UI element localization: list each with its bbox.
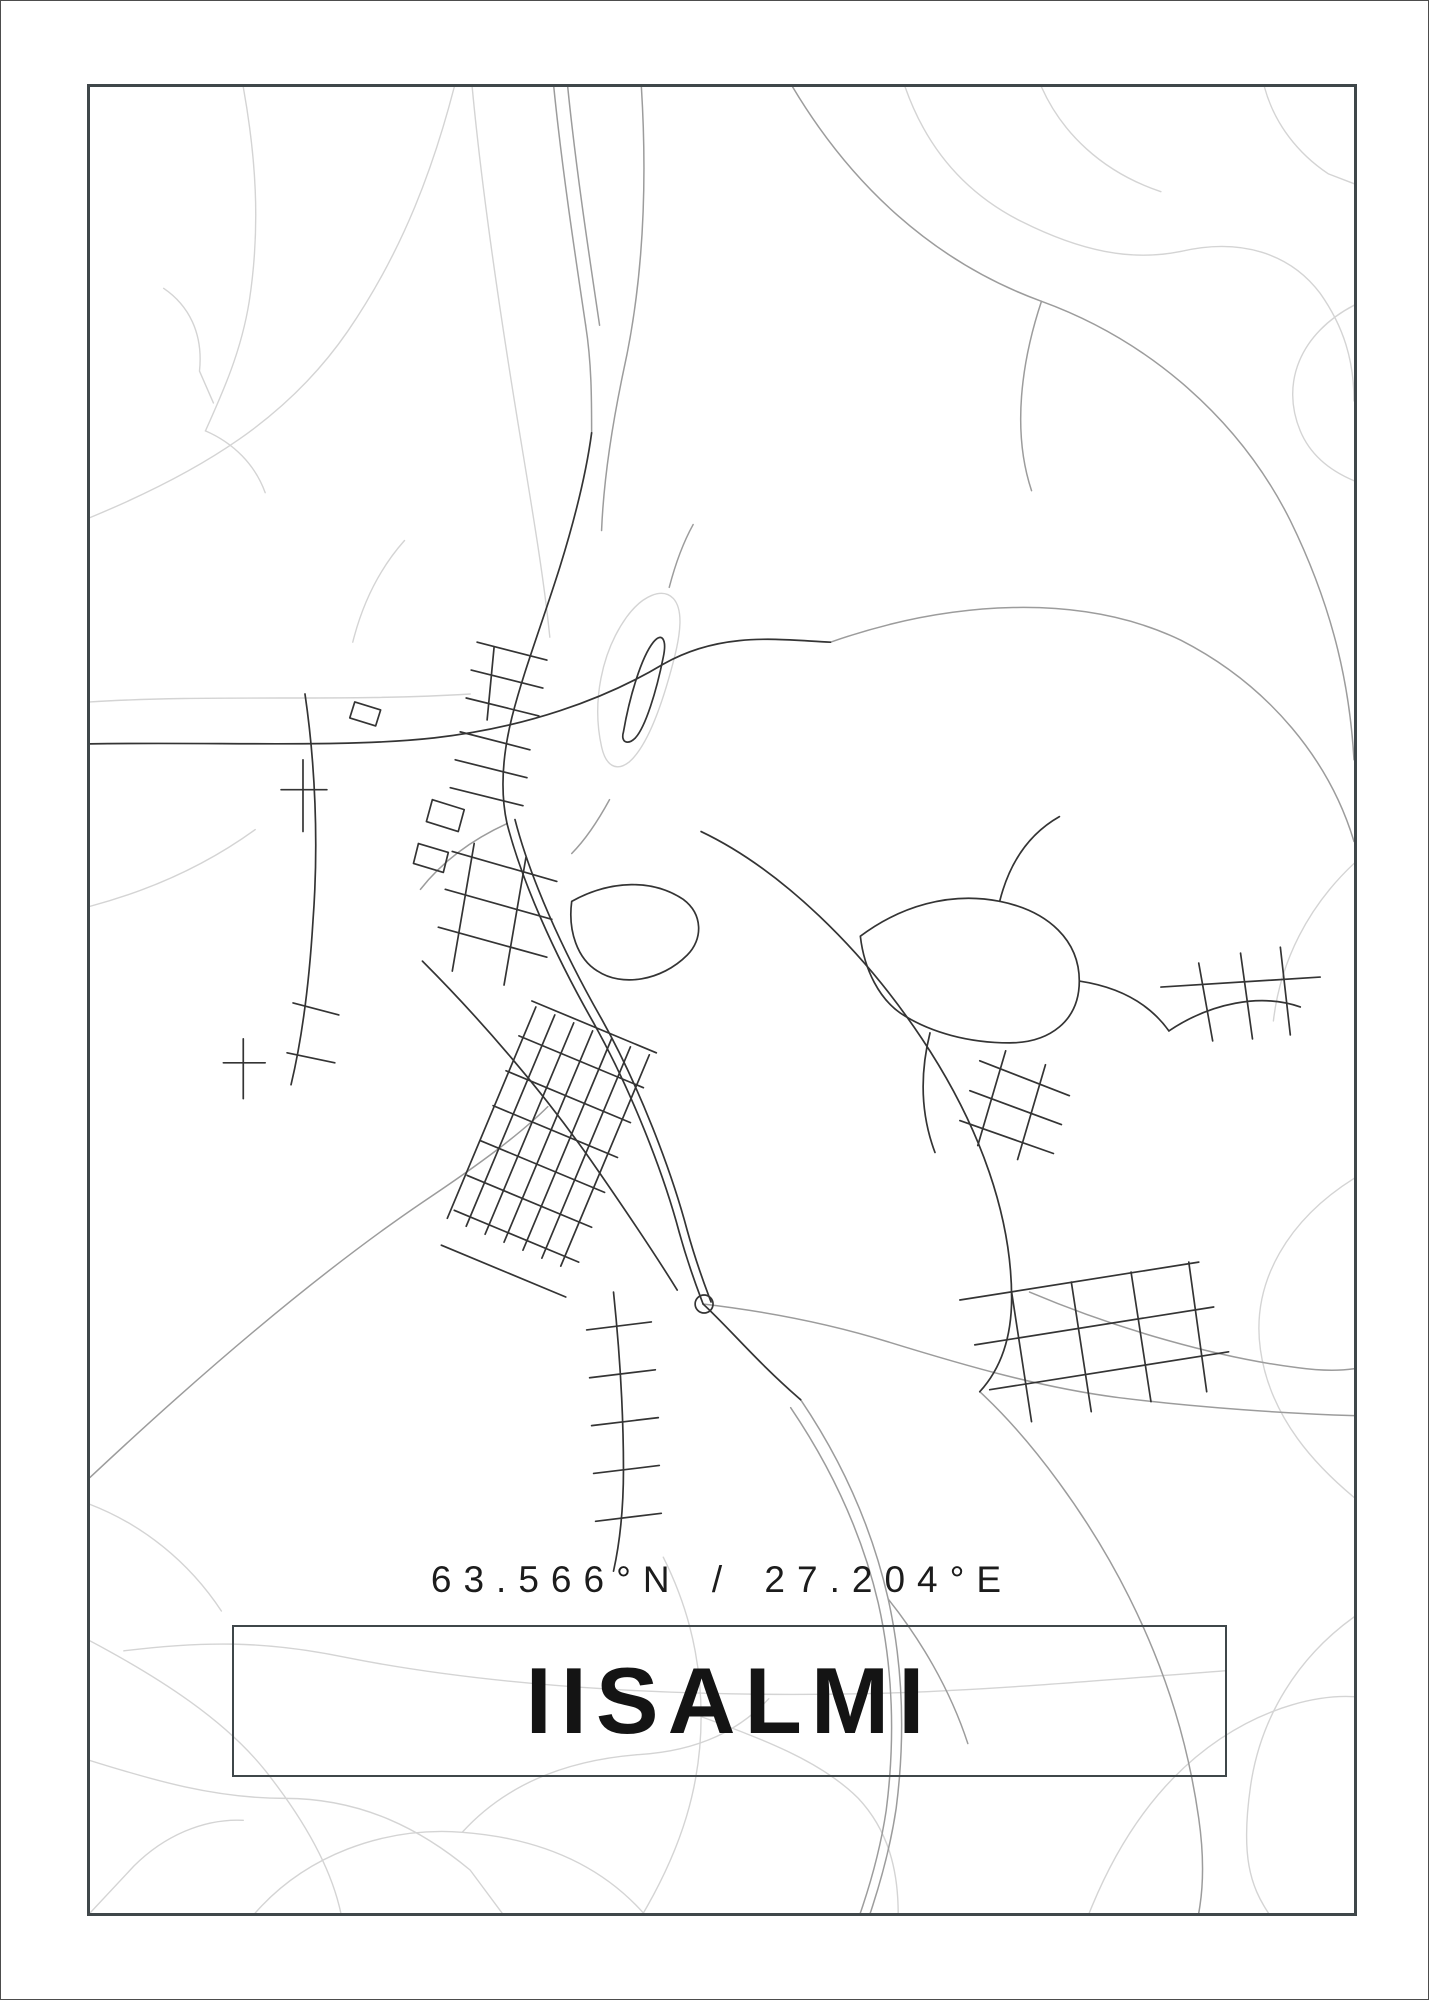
road-roads-dark xyxy=(970,1091,1062,1125)
road-roads-dark xyxy=(542,1047,631,1258)
road-roads-dark xyxy=(587,1322,652,1330)
road-roads-dark xyxy=(450,788,523,806)
road-roads-light xyxy=(1259,1178,1354,1497)
road-roads-medium xyxy=(602,87,644,531)
road-roads-dark xyxy=(485,1023,574,1234)
road-roads-medium xyxy=(669,525,693,588)
road-roads-dark xyxy=(1241,953,1253,1039)
road-roads-dark xyxy=(960,1262,1199,1300)
road-roads-dark xyxy=(596,1513,662,1521)
road-roads-dark xyxy=(860,898,1079,1043)
road-roads-dark xyxy=(291,694,316,1085)
road-roads-medium xyxy=(554,87,586,325)
road-roads-light xyxy=(255,1832,643,1913)
road-roads-dark xyxy=(507,824,703,1304)
road-roads-light xyxy=(1181,246,1354,400)
road-roads-dark xyxy=(561,1055,650,1266)
road-roads-dark xyxy=(460,732,530,750)
road-roads-medium xyxy=(568,87,600,325)
road-roads-medium xyxy=(90,1107,548,1478)
title-box: IISALMI xyxy=(232,1625,1227,1777)
road-roads-dark xyxy=(287,1053,335,1063)
road-roads-dark xyxy=(571,885,699,980)
road-roads-dark xyxy=(452,844,474,972)
road-roads-dark xyxy=(1161,977,1320,987)
road-roads-dark xyxy=(506,1071,630,1123)
road-roads-dark xyxy=(1000,817,1060,902)
road-roads-dark xyxy=(426,800,464,832)
city-title: IISALMI xyxy=(526,1647,934,1755)
road-roads-medium xyxy=(572,800,610,854)
road-roads-dark xyxy=(466,698,539,716)
road-roads-dark xyxy=(413,844,448,873)
road-roads-light xyxy=(353,541,405,643)
road-roads-light xyxy=(205,87,255,431)
road-roads-dark xyxy=(623,637,665,742)
road-roads-dark xyxy=(454,1210,578,1262)
map-poster: 63.566°N / 27.204°E IISALMI xyxy=(0,0,1429,2000)
road-roads-dark xyxy=(503,433,592,824)
road-roads-dark xyxy=(350,702,381,726)
road-roads-dark xyxy=(523,1039,612,1250)
road-roads-dark xyxy=(455,760,527,778)
road-roads-dark xyxy=(1079,981,1169,1031)
road-roads-dark xyxy=(504,857,526,985)
road-roads-dark xyxy=(701,832,1012,1392)
road-roads-dark xyxy=(592,1418,659,1426)
road-roads-light xyxy=(1041,87,1160,192)
road-roads-dark xyxy=(594,1465,660,1473)
road-roads-dark xyxy=(293,1003,339,1015)
road-roads-dark xyxy=(487,647,494,720)
road-roads-light xyxy=(90,1761,502,1913)
road-roads-dark xyxy=(447,1007,536,1218)
road-roads-light xyxy=(90,830,255,907)
road-roads-medium xyxy=(830,607,1354,841)
road-roads-dark xyxy=(614,1292,624,1571)
road-roads-dark xyxy=(590,1370,656,1378)
road-roads-medium xyxy=(1021,301,1042,490)
road-roads-light xyxy=(905,87,1181,255)
road-roads-dark xyxy=(1199,963,1213,1041)
road-roads-medium xyxy=(420,824,507,890)
road-roads-dark xyxy=(1189,1262,1207,1392)
road-roads-dark xyxy=(1012,1292,1032,1422)
road-roads-dark xyxy=(703,1304,801,1400)
road-roads-light xyxy=(598,593,680,766)
road-roads-light xyxy=(90,87,454,518)
road-roads-medium xyxy=(793,87,1354,760)
road-roads-light xyxy=(90,1820,243,1913)
road-roads-dark xyxy=(471,670,543,688)
road-roads-light xyxy=(1264,87,1354,184)
road-roads-dark xyxy=(493,1106,617,1158)
road-roads-dark xyxy=(960,1121,1054,1154)
coordinates-label: 63.566°N / 27.204°E xyxy=(87,1559,1357,1601)
road-roads-light xyxy=(205,431,265,493)
road-roads-medium xyxy=(586,325,592,433)
road-roads-dark xyxy=(504,1031,593,1242)
road-roads-dark xyxy=(477,642,547,660)
road-roads-dark xyxy=(1169,1001,1300,1031)
road-roads-light xyxy=(1293,305,1354,480)
road-roads-dark xyxy=(90,639,830,744)
road-roads-dark xyxy=(466,1015,555,1226)
road-roads-dark xyxy=(480,1141,604,1193)
road-roads-light xyxy=(1247,1617,1354,1913)
road-roads-light xyxy=(472,87,550,637)
road-roads-light xyxy=(90,694,470,702)
road-roads-dark xyxy=(1131,1272,1151,1402)
road-roads-dark xyxy=(441,1245,565,1297)
road-roads-light xyxy=(164,288,214,403)
